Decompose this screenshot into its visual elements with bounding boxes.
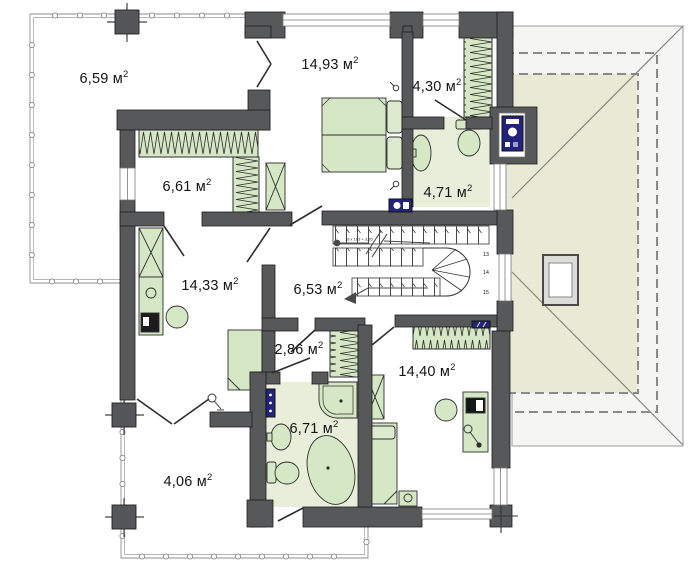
door-swing (164, 226, 184, 256)
door-swing (272, 358, 310, 373)
room-area-label-wardrobe-top: 4,30 м2 (413, 77, 462, 95)
desk-icon (463, 392, 488, 452)
door-swing (137, 399, 172, 424)
towel-rail-icon (266, 389, 275, 417)
room-area-label-bathroom-upper: 4,71 м2 (424, 183, 473, 201)
room-area-label-bathroom-lower: 6,71 м2 (290, 419, 339, 437)
roof-plan (505, 26, 683, 446)
wardrobe-icon (413, 325, 490, 349)
stool-icon (166, 306, 188, 328)
shower-icon (319, 382, 357, 418)
skylight-icon (543, 255, 578, 305)
floor-lamp-icon (208, 394, 224, 410)
room-area-label-bedroom-lower: 14,40 м2 (398, 362, 455, 380)
stair-step-numbers: 13 14 15 (483, 252, 489, 296)
room-area-label-hallway: 6,53 м2 (294, 280, 343, 298)
wall-lamp-icon (390, 82, 399, 190)
room-area-label-terrace-lower: 4,06 м2 (164, 472, 213, 490)
sink-icon (411, 135, 431, 171)
wardrobe-icon (330, 325, 358, 377)
railing-post-icon (105, 396, 144, 435)
room-area-label-closet-small: 2,86 м2 (275, 340, 324, 358)
door-swing (278, 508, 303, 521)
railing-post-icon (105, 498, 144, 537)
svg-text:13: 13 (483, 252, 489, 258)
vent-icon (389, 199, 412, 212)
room-area-label-walk-in-closet: 6,61 м2 (163, 177, 212, 195)
stairs: 18 x 103 + 3,35 13 14 15 (333, 226, 489, 304)
svg-text:14: 14 (483, 270, 489, 276)
room-area-label-terrace-upper: 6,59 м2 (80, 69, 129, 87)
railing-post-icon (107, 3, 147, 42)
room-area-label-bedroom-master: 14,93 м2 (301, 55, 358, 73)
cabinet-icon (139, 228, 163, 335)
nightstand-icon (399, 491, 417, 506)
wardrobe-icon (139, 130, 259, 212)
svg-text:15: 15 (483, 290, 489, 296)
wardrobe-icon (464, 32, 492, 117)
door-swing (372, 327, 394, 345)
door-swing (247, 228, 270, 262)
room-area-label-room-left: 14,33 м2 (181, 276, 238, 294)
door-swing (257, 64, 271, 87)
stair-annotation: 18 x 103 + 3,35 (345, 237, 373, 242)
boiler-icon (502, 116, 523, 151)
toilet-icon (267, 462, 299, 484)
floor-plan: 18 x 103 + 3,35 13 14 15 (0, 0, 700, 575)
door-swing (257, 41, 271, 64)
cabinet-icon (266, 163, 285, 210)
door-swing (290, 206, 322, 225)
door-swing (174, 399, 209, 424)
chair-icon (435, 399, 457, 421)
bed-icon (322, 98, 402, 172)
vent-tag-icon (472, 321, 490, 328)
